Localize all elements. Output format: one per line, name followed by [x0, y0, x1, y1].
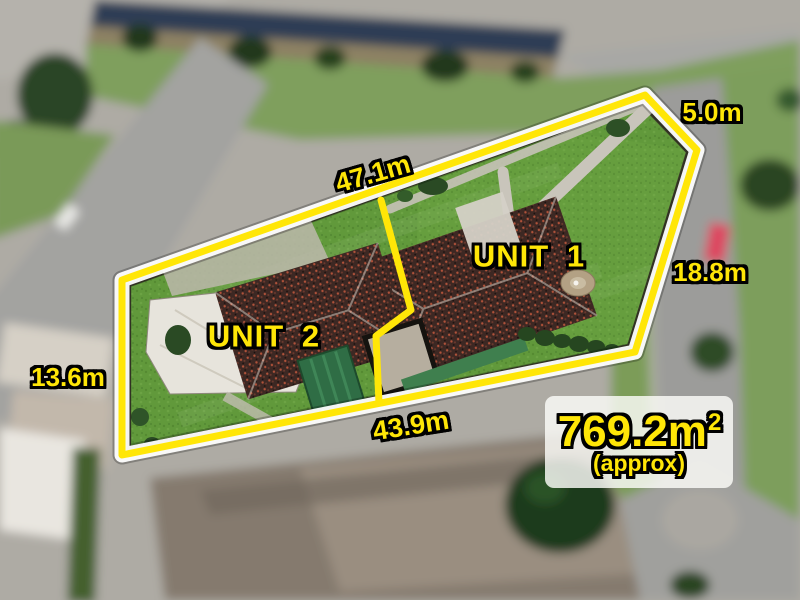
unit2-label: UNIT 2 — [208, 321, 320, 352]
measurement-left: 13.6m — [31, 364, 105, 390]
area-value: 769.2m — [558, 407, 707, 456]
area-value-line: 769.2m2 — [558, 410, 721, 454]
aerial-photo — [0, 0, 800, 600]
area-exponent: 2 — [708, 409, 721, 436]
measurement-top-right: 5.0m — [682, 99, 741, 125]
unit1-label: UNIT 1 — [473, 241, 585, 272]
measurement-right: 18.8m — [673, 259, 747, 285]
aerial-photo-stage: 47.1m 5.0m 18.8m 13.6m 43.9m UNIT 1 UNIT… — [0, 0, 800, 600]
area-qualifier: (approx) — [593, 452, 685, 475]
area-badge: 769.2m2 (approx) — [545, 396, 733, 488]
